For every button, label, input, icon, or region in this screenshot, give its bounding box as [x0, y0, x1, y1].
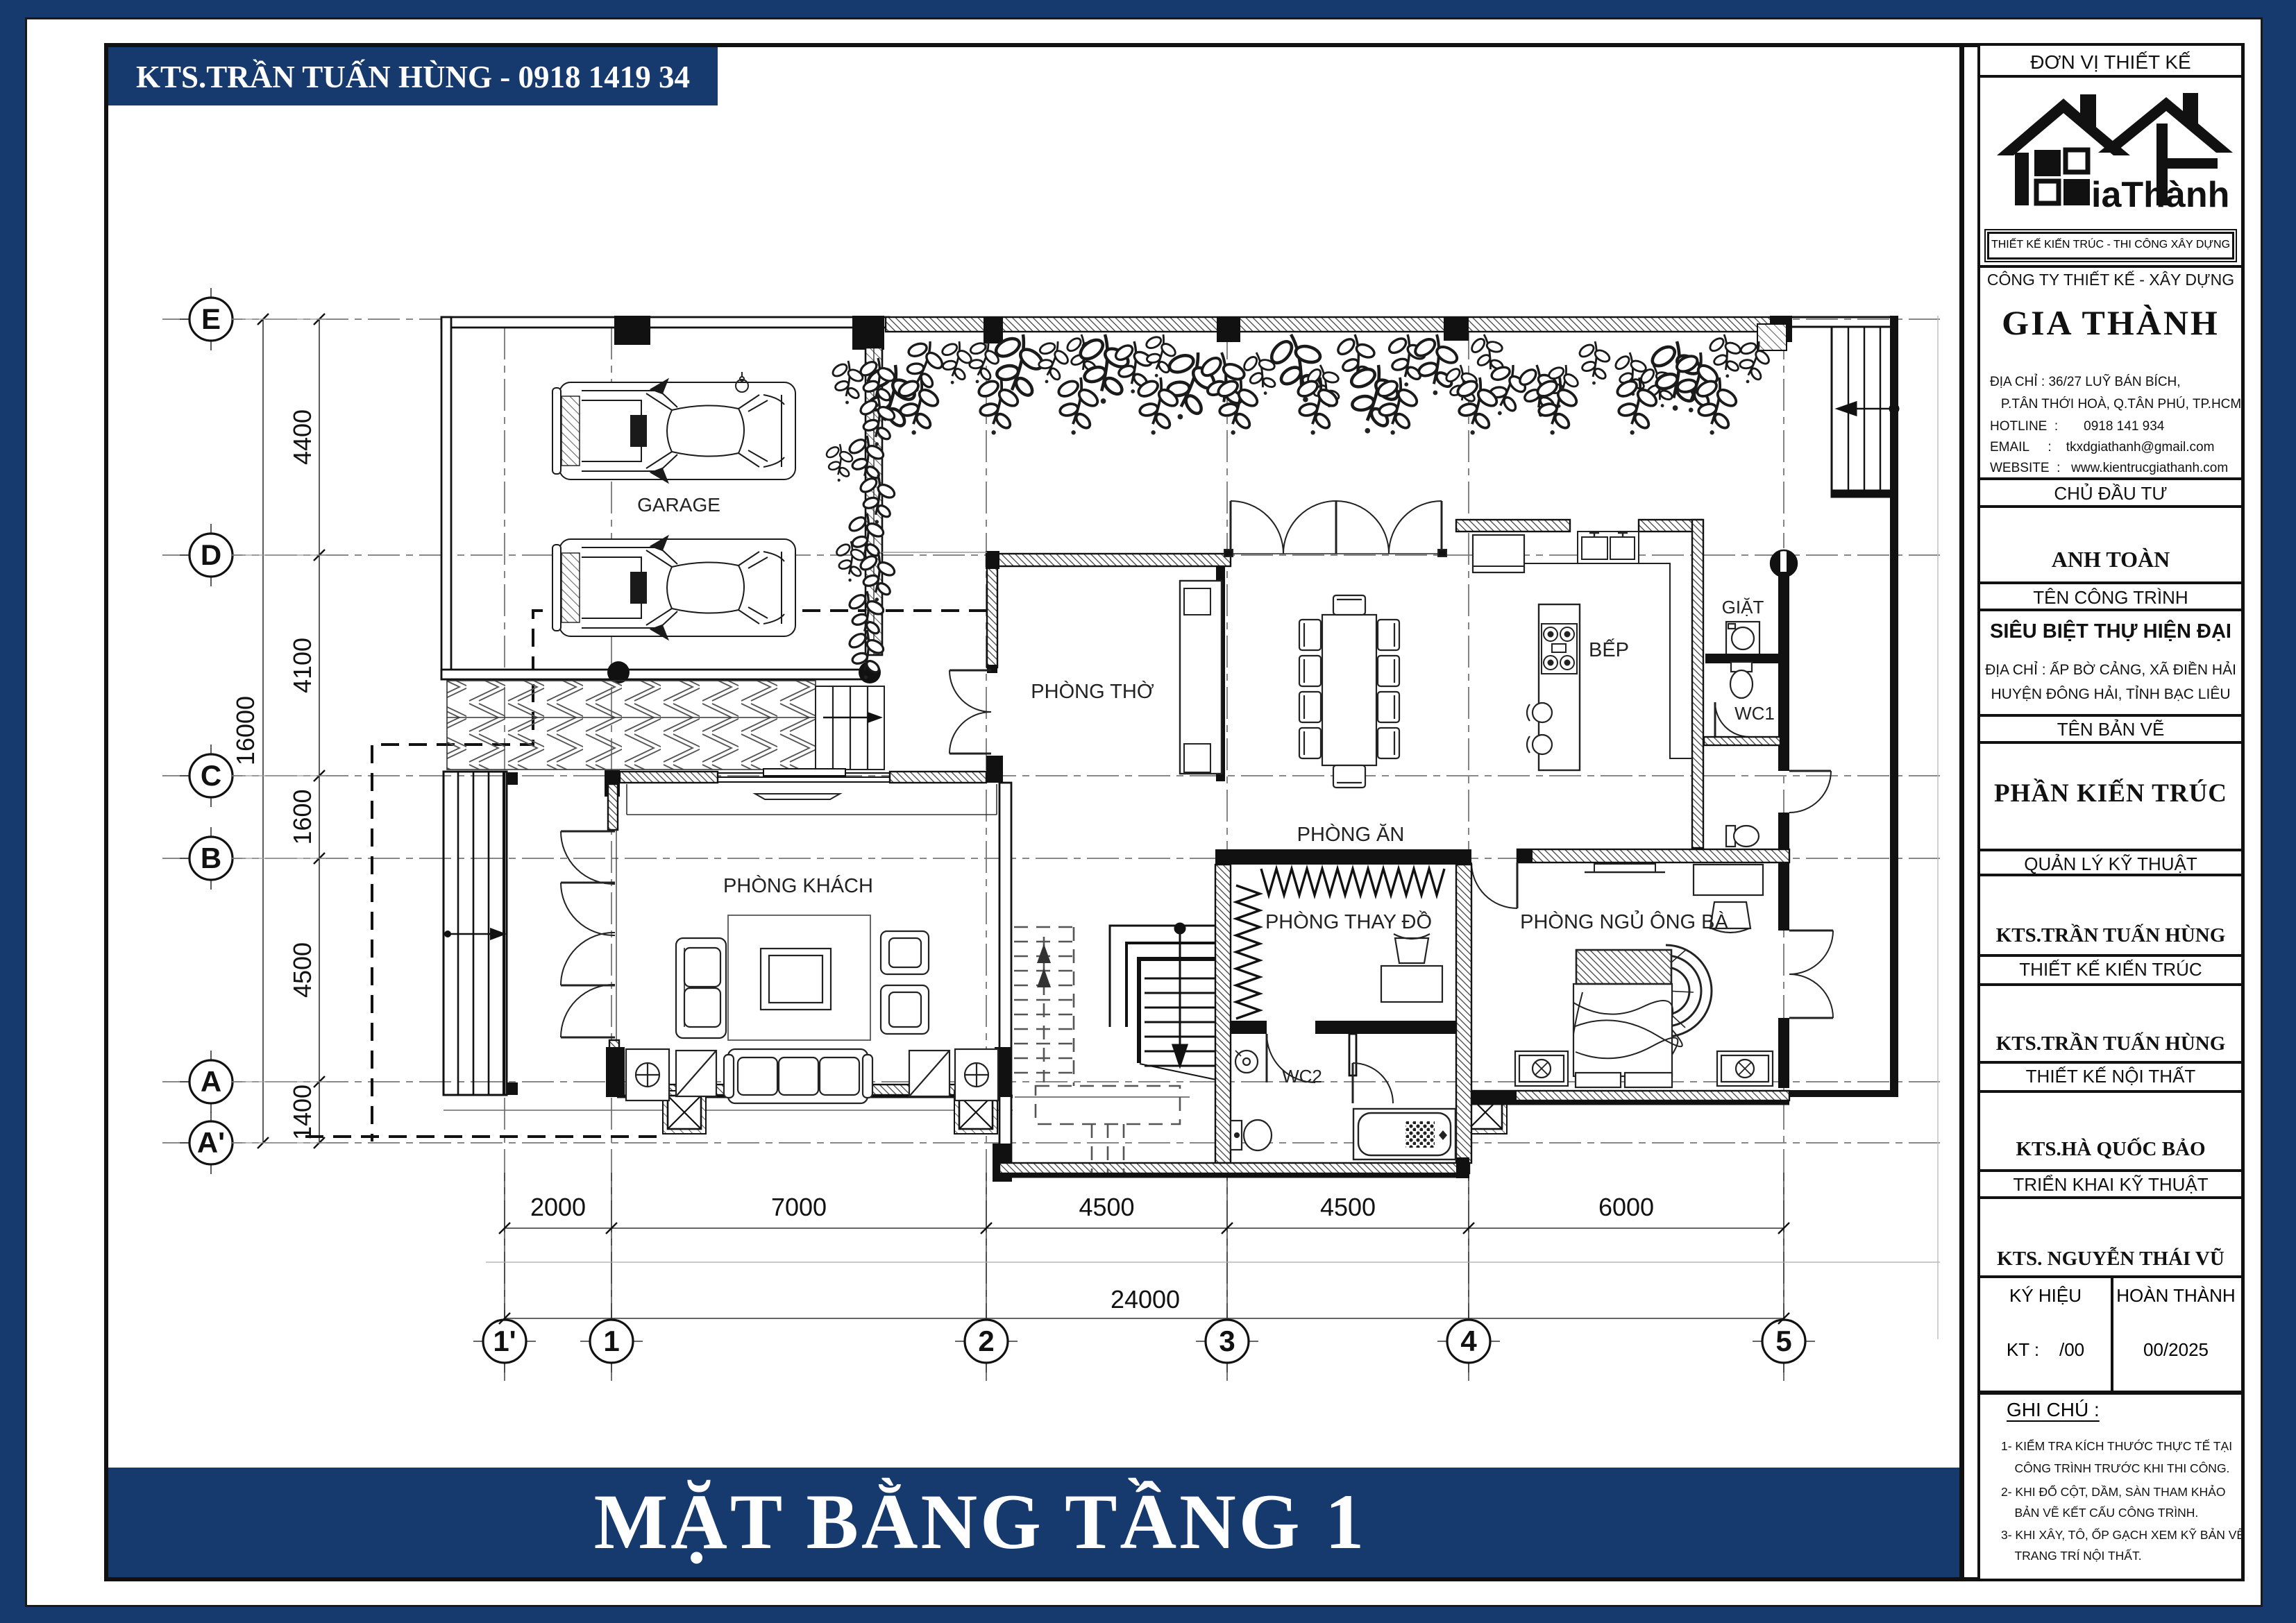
svg-text:5: 5: [1775, 1325, 1791, 1357]
svg-text:GIẶT: GIẶT: [1722, 597, 1764, 618]
svg-text:2000: 2000: [530, 1193, 586, 1221]
svg-text:PHÒNG KHÁCH: PHÒNG KHÁCH: [723, 874, 873, 897]
svg-text:GARAGE: GARAGE: [637, 494, 720, 516]
svg-text:1600: 1600: [288, 789, 316, 844]
svg-text:7000: 7000: [771, 1193, 827, 1221]
svg-text:WC2: WC2: [1282, 1066, 1322, 1087]
svg-text:A': A': [197, 1126, 225, 1159]
svg-text:4500: 4500: [288, 942, 316, 998]
svg-text:PHÒNG NGỦ ÔNG BÀ: PHÒNG NGỦ ÔNG BÀ: [1520, 910, 1728, 933]
svg-text:1: 1: [603, 1325, 619, 1357]
svg-text:D: D: [201, 538, 221, 571]
svg-text:4400: 4400: [288, 409, 316, 465]
svg-text:B: B: [201, 842, 221, 874]
svg-text:PHÒNG ĂN: PHÒNG ĂN: [1297, 823, 1405, 846]
svg-text:PHÒNG THỜ: PHÒNG THỜ: [1031, 680, 1154, 703]
svg-text:WC1: WC1: [1734, 703, 1775, 724]
svg-text:A: A: [201, 1065, 221, 1098]
svg-text:iaThành: iaThành: [2091, 175, 2229, 215]
svg-text:BẾP: BẾP: [1589, 638, 1629, 661]
svg-text:4500: 4500: [1079, 1193, 1134, 1221]
svg-text:1400: 1400: [288, 1085, 316, 1140]
svg-text:PHÒNG THAY ĐỒ: PHÒNG THAY ĐỒ: [1265, 910, 1432, 933]
svg-text:3: 3: [1219, 1325, 1235, 1357]
svg-text:16000: 16000: [231, 696, 260, 765]
svg-text:24000: 24000: [1111, 1285, 1180, 1314]
svg-text:2: 2: [978, 1325, 994, 1357]
svg-text:E: E: [201, 303, 221, 335]
svg-text:1': 1': [493, 1325, 516, 1357]
svg-text:4500: 4500: [1320, 1193, 1376, 1221]
svg-text:C: C: [201, 759, 221, 792]
svg-text:4100: 4100: [288, 638, 316, 693]
svg-text:4: 4: [1460, 1325, 1477, 1357]
svg-text:6000: 6000: [1598, 1193, 1654, 1221]
